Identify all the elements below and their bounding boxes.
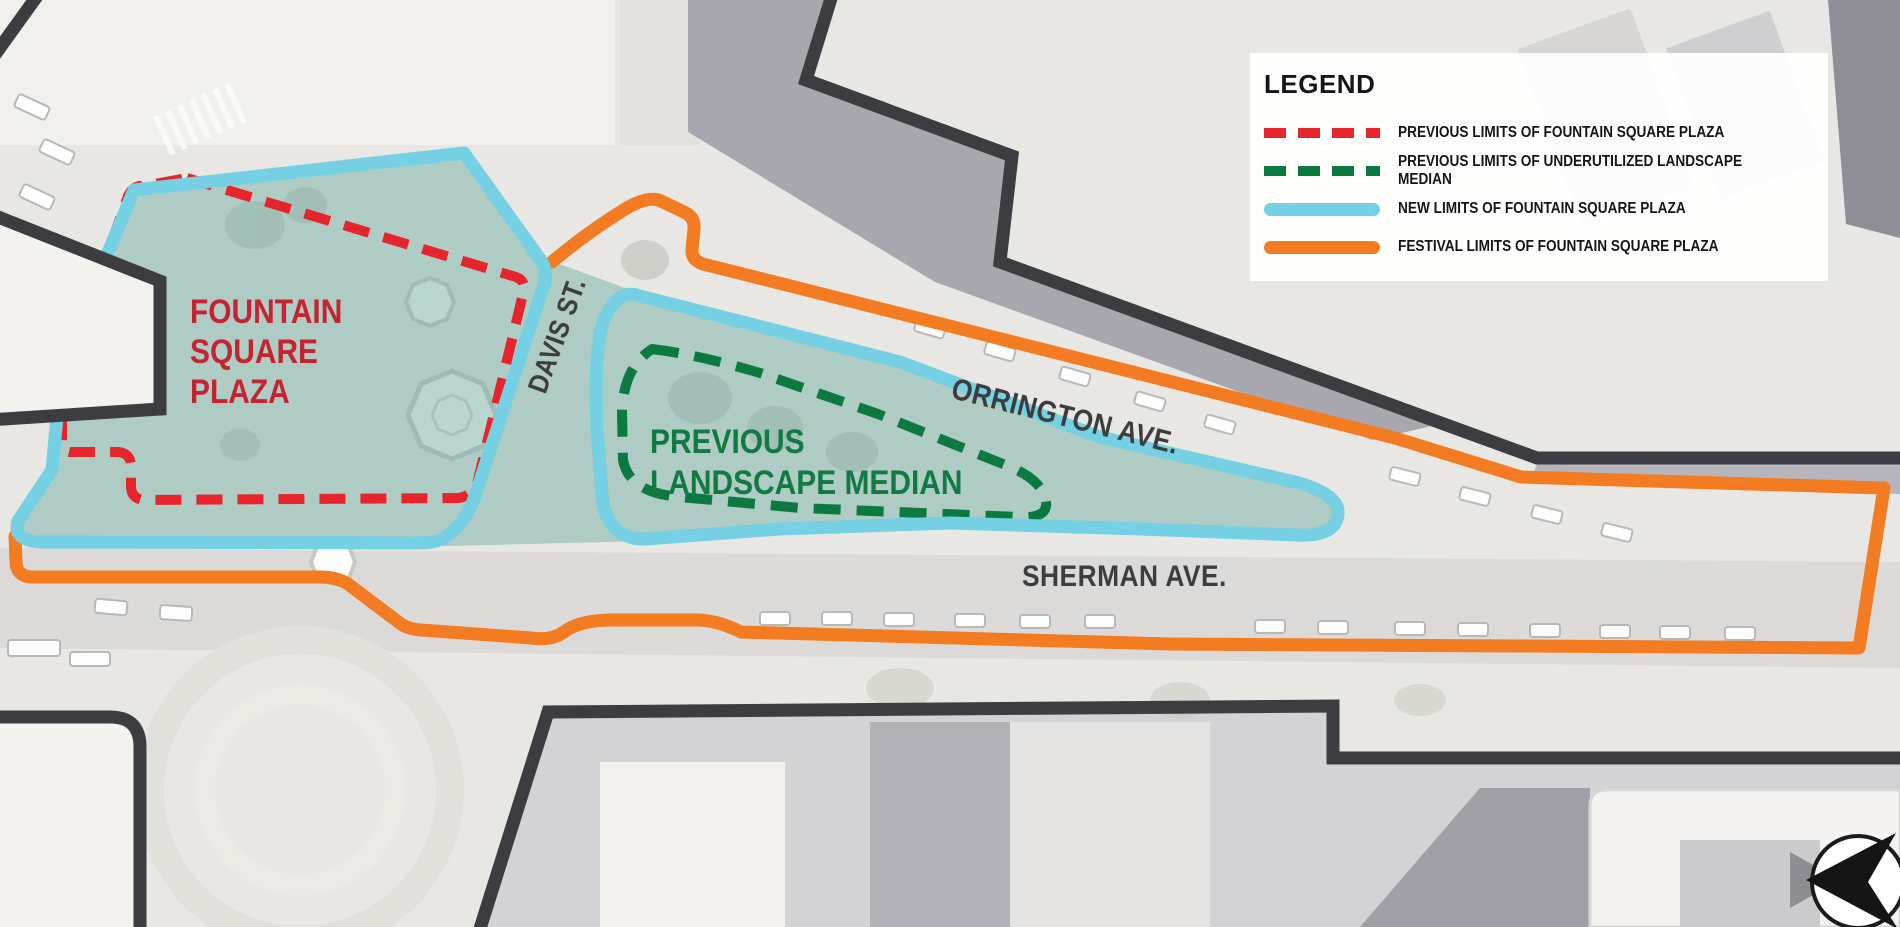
orange-solid-swatch [1264,241,1380,254]
legend-item-festival-limits: FESTIVAL LIMITS OF FOUNTAIN SQUARE PLAZA [1264,228,1828,266]
green-dashed-swatch [1264,166,1380,176]
legend-item-new-limits: NEW LIMITS OF FOUNTAIN SQUARE PLAZA [1264,190,1828,228]
north-arrow-icon [1795,825,1900,927]
legend-item-previous-plaza: PREVIOUS LIMITS OF FOUNTAIN SQUARE PLAZA [1264,114,1828,152]
legend-title: LEGEND [1264,69,1828,100]
median-label-line2: LANDSCAPE MEDIAN [650,463,963,504]
red-dashed-swatch [1264,128,1380,138]
sherman-ave-label: SHERMAN AVE. [1022,560,1255,594]
fountain-square-plaza-label: FOUNTAIN SQUARE PLAZA [190,292,363,412]
plaza-label-line3: PLAZA [190,372,290,412]
plaza-label-line2: SQUARE [190,332,318,372]
legend-panel: LEGEND PREVIOUS LIMITS OF FOUNTAIN SQUAR… [1250,53,1828,281]
cyan-solid-swatch [1264,203,1380,216]
legend-item-previous-median: PREVIOUS LIMITS OF UNDERUTILIZED LANDSCA… [1264,152,1828,190]
plaza-label-line1: FOUNTAIN [190,292,342,332]
previous-landscape-median-label: PREVIOUS LANDSCAPE MEDIAN [650,422,1005,504]
median-label-line1: PREVIOUS [650,422,805,463]
site-plan-map: FOUNTAIN SQUARE PLAZA PREVIOUS LANDSCAPE… [0,0,1900,927]
